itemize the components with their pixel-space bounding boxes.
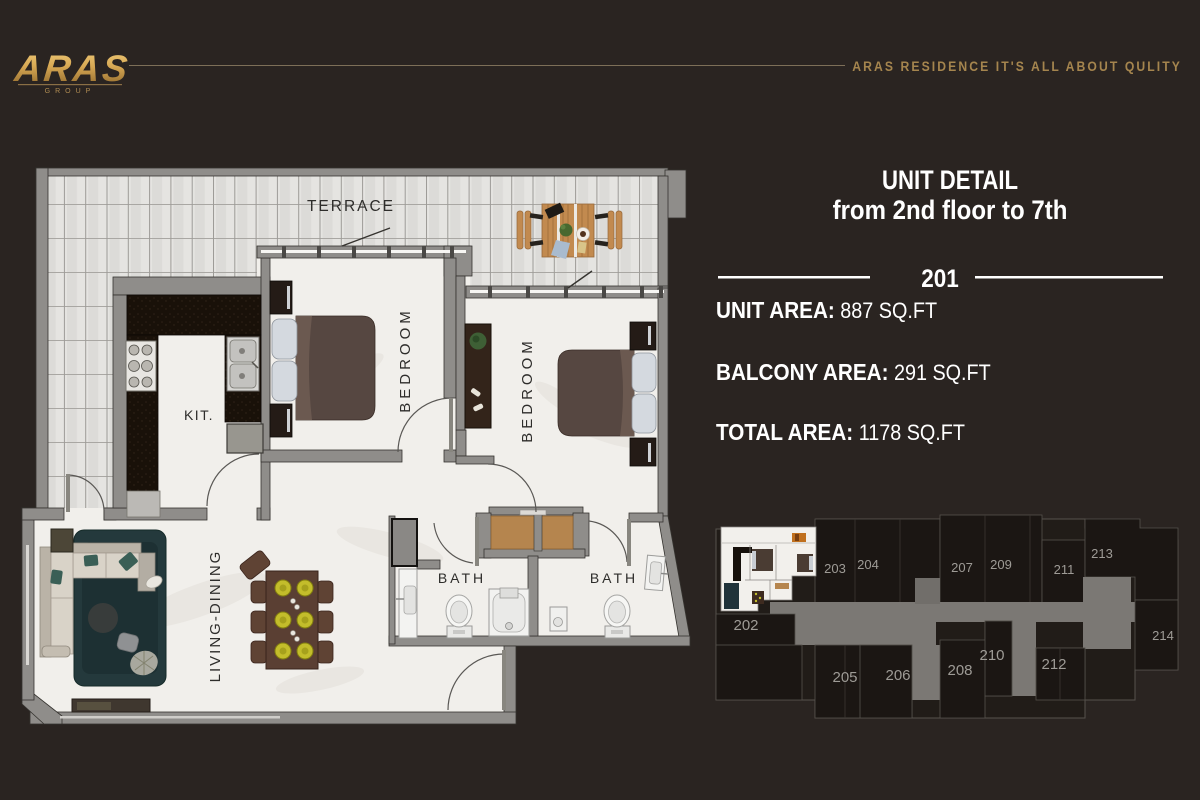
svg-text:TOTAL AREA: 1178 SQ.FT: TOTAL AREA: 1178 SQ.FT bbox=[716, 419, 965, 445]
svg-text:211: 211 bbox=[1054, 562, 1075, 577]
svg-text:208: 208 bbox=[947, 662, 972, 679]
svg-text:TERRACE: TERRACE bbox=[307, 198, 395, 215]
svg-text:ARAS: ARAS bbox=[12, 47, 132, 89]
svg-text:206: 206 bbox=[885, 667, 910, 684]
svg-text:210: 210 bbox=[979, 647, 1004, 664]
svg-text:from 2nd floor to 7th: from 2nd floor to 7th bbox=[833, 196, 1068, 226]
svg-text:UNIT AREA: 887 SQ.FT: UNIT AREA: 887 SQ.FT bbox=[716, 297, 937, 323]
svg-text:202: 202 bbox=[733, 617, 758, 634]
svg-text:KIT.: KIT. bbox=[184, 407, 214, 423]
svg-text:GROUP: GROUP bbox=[45, 88, 96, 95]
svg-text:BEDROOM: BEDROOM bbox=[519, 337, 536, 443]
svg-text:213: 213 bbox=[1091, 546, 1113, 561]
svg-text:BATH: BATH bbox=[438, 570, 486, 586]
svg-text:205: 205 bbox=[832, 669, 857, 686]
svg-text:LIVING-DINING: LIVING-DINING bbox=[207, 550, 224, 683]
svg-text:209: 209 bbox=[990, 557, 1012, 572]
svg-text:BATH: BATH bbox=[590, 570, 638, 586]
svg-text:201: 201 bbox=[921, 265, 959, 293]
svg-text:UNIT DETAIL: UNIT DETAIL bbox=[882, 166, 1018, 196]
svg-text:212: 212 bbox=[1041, 656, 1066, 673]
svg-text:204: 204 bbox=[857, 557, 879, 572]
svg-text:207: 207 bbox=[951, 560, 973, 575]
svg-text:ARAS RESIDENCE IT'S ALL ABOUT: ARAS RESIDENCE IT'S ALL ABOUT QULITY bbox=[852, 58, 1182, 74]
svg-text:BEDROOM: BEDROOM bbox=[397, 307, 414, 413]
svg-text:BALCONY AREA: 291 SQ.FT: BALCONY AREA: 291 SQ.FT bbox=[716, 359, 991, 385]
svg-text:214: 214 bbox=[1152, 628, 1174, 643]
svg-text:203: 203 bbox=[824, 561, 846, 576]
